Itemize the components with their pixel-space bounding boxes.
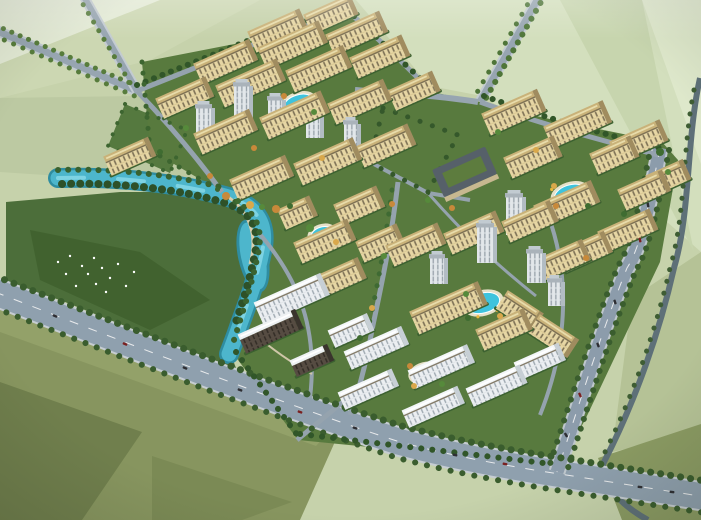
vignette-overlay	[0, 0, 701, 520]
aerial-rendering-stage: Aerial bird's-eye rendering of a residen…	[0, 0, 701, 520]
aerial-site-plan-rendering: Aerial bird's-eye rendering of a residen…	[0, 0, 701, 520]
